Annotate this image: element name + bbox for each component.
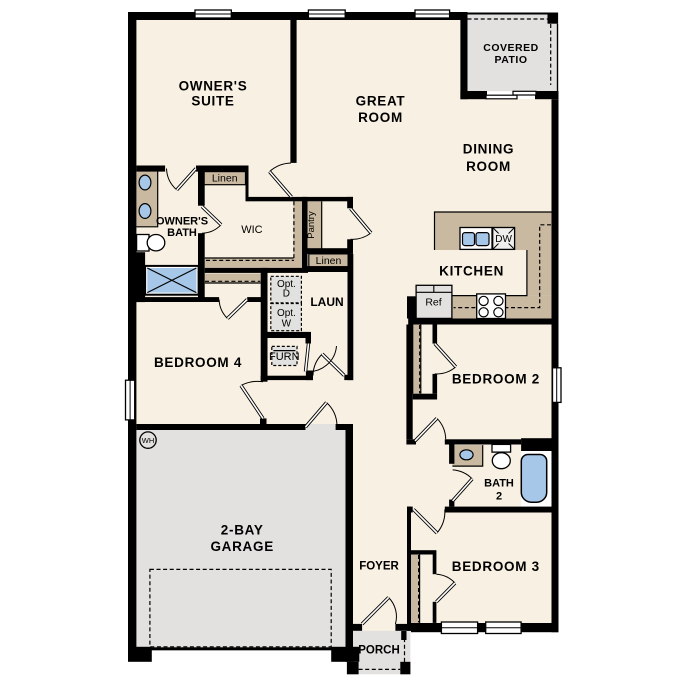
svg-text:ROOM: ROOM <box>466 159 511 174</box>
svg-text:Opt.: Opt. <box>277 308 296 319</box>
svg-text:PATIO: PATIO <box>494 54 527 66</box>
svg-text:COVERED: COVERED <box>483 42 538 54</box>
svg-text:OWNER'S: OWNER'S <box>179 79 248 94</box>
svg-text:WH: WH <box>142 436 155 445</box>
svg-text:PORCH: PORCH <box>358 645 400 657</box>
svg-text:D: D <box>283 288 290 299</box>
svg-text:2-BAY: 2-BAY <box>221 523 264 538</box>
svg-text:GARAGE: GARAGE <box>210 539 273 554</box>
svg-text:WIC: WIC <box>241 224 262 236</box>
svg-text:DW: DW <box>495 234 512 245</box>
svg-text:LAUN: LAUN <box>310 295 343 309</box>
svg-text:ROOM: ROOM <box>358 110 403 125</box>
svg-text:BEDROOM 4: BEDROOM 4 <box>154 355 242 370</box>
svg-text:2: 2 <box>496 491 502 503</box>
svg-text:W: W <box>282 318 292 329</box>
svg-text:KITCHEN: KITCHEN <box>439 264 504 279</box>
svg-text:FURN: FURN <box>269 351 300 363</box>
svg-text:BATH: BATH <box>167 227 197 239</box>
svg-text:Linen: Linen <box>316 255 342 267</box>
svg-text:GREAT: GREAT <box>356 94 406 109</box>
svg-text:OWNER'S: OWNER'S <box>156 216 208 228</box>
svg-text:BEDROOM 2: BEDROOM 2 <box>452 371 540 386</box>
svg-text:DINING: DINING <box>463 141 514 156</box>
svg-text:Linen: Linen <box>212 173 238 185</box>
svg-text:Pantry: Pantry <box>306 211 317 239</box>
svg-text:BEDROOM 3: BEDROOM 3 <box>452 559 540 574</box>
svg-text:FOYER: FOYER <box>359 561 399 573</box>
svg-text:Ref: Ref <box>425 296 441 308</box>
svg-text:BATH: BATH <box>484 478 514 490</box>
svg-text:SUITE: SUITE <box>191 93 234 108</box>
